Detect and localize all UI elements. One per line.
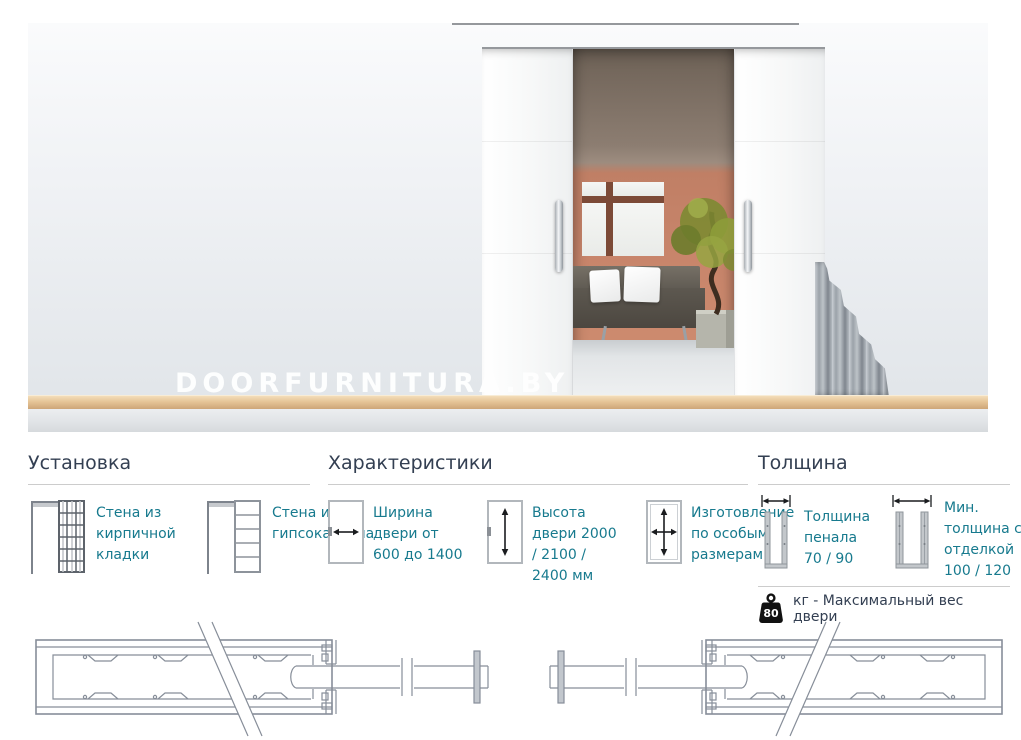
sliding-door-right: [734, 48, 825, 395]
plan-drawing-right: [548, 620, 1008, 738]
installation-item-brick: Стена из кирпичной кладки: [28, 498, 180, 574]
brick-wall-pocket-icon: [28, 498, 86, 574]
plan-drawing-left: [30, 620, 490, 738]
characteristic-item-height: Высота двери 2000 / 2100 / 2400 мм: [487, 500, 624, 587]
section-title-installation: Установка: [28, 452, 310, 475]
thickness-item-finished: Мин. толщина с отделкой 100 / 120: [890, 494, 1021, 582]
glossy-floor: [28, 409, 988, 432]
section-thickness: Толщина Толщина пенала 70 / 90: [758, 452, 1010, 485]
wall-cutaway-metal-frame: [815, 262, 891, 395]
sliding-door-left: [482, 48, 573, 395]
opening-lintel: [452, 23, 799, 25]
pillow: [589, 269, 621, 303]
window-pane: [582, 203, 606, 256]
section-title-thickness: Толщина: [758, 452, 1010, 475]
drywall-pocket-icon: [204, 498, 262, 574]
door-height-arrow-icon: [487, 500, 523, 564]
cassette-thickness-icon: [758, 494, 794, 574]
section-characteristics: Характеристики Ширина двери от 600 до 14…: [328, 452, 748, 485]
door-handle-left: [555, 200, 563, 272]
door-seam: [482, 141, 572, 142]
section-rule: [758, 586, 1010, 587]
hero-photo: DOORFURNITURA.BY: [28, 23, 988, 432]
section-title-characteristics: Характеристики: [328, 452, 748, 475]
door-custom-size-icon: [646, 500, 682, 564]
opening-top-line: [482, 47, 825, 49]
thickness-item-cassette: Толщина пенала 70 / 90: [758, 494, 874, 574]
watermark-text: DOORFURNITURA.BY: [175, 368, 569, 399]
product-infographic-page: DOORFURNITURA.BY Установка Стена из кирп…: [0, 0, 1021, 740]
thickness-item-label: Мин. толщина с отделкой 100 / 120: [944, 498, 1021, 582]
characteristic-item-label: Ширина двери от 600 до 1400: [373, 503, 465, 566]
section-rule: [28, 484, 310, 485]
door-width-arrow-icon: [328, 500, 364, 564]
installation-item-label: Стена из кирпичной кладки: [96, 503, 180, 566]
characteristic-item-width: Ширина двери от 600 до 1400: [328, 500, 465, 566]
finished-wall-thickness-icon: [890, 494, 934, 574]
potted-plant: [652, 188, 735, 378]
thickness-item-label: Толщина пенала 70 / 90: [804, 507, 874, 570]
room-interior: [572, 48, 735, 395]
door-handle-right: [744, 200, 752, 272]
section-rule: [328, 484, 748, 485]
section-installation: Установка Стена из кирпичной кладки: [28, 452, 310, 485]
characteristic-item-label: Высота двери 2000 / 2100 / 2400 мм: [532, 503, 624, 587]
door-seam: [735, 141, 825, 142]
window-pane: [582, 182, 606, 196]
svg-text:80: 80: [763, 607, 779, 620]
section-rule: [758, 484, 1010, 485]
